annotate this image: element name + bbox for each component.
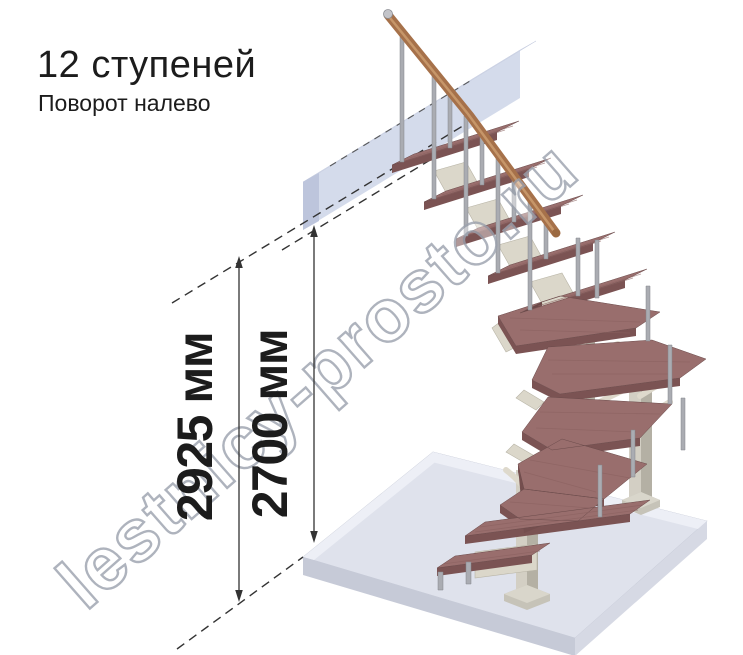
title-block: 12 ступеней Поворот налево	[37, 44, 256, 116]
dimension-2700-label: 2700 мм	[242, 330, 298, 519]
dimension-2925-arrow-up	[235, 256, 243, 268]
dimension-2700-arrow-down	[310, 531, 318, 543]
handrail-top-cap	[384, 10, 393, 19]
dimension-2925-label: 2925 мм	[167, 333, 223, 522]
handrail-end-cap	[552, 229, 560, 237]
staircase-render: lestnicy-prosto.ru 2925 мм 2700 мм 12 ст…	[0, 0, 743, 655]
dashed-line-floor	[177, 557, 303, 649]
staircase-diagram: lestnicy-prosto.ru 2925 мм 2700 мм 12 ст…	[0, 0, 743, 655]
page-subtitle: Поворот налево	[38, 90, 211, 116]
dimension-2925-arrow-down	[235, 590, 243, 602]
column-right-right-face	[641, 380, 652, 506]
page-title: 12 ступеней	[37, 44, 256, 86]
dimension-2700-arrow-up	[310, 225, 318, 237]
